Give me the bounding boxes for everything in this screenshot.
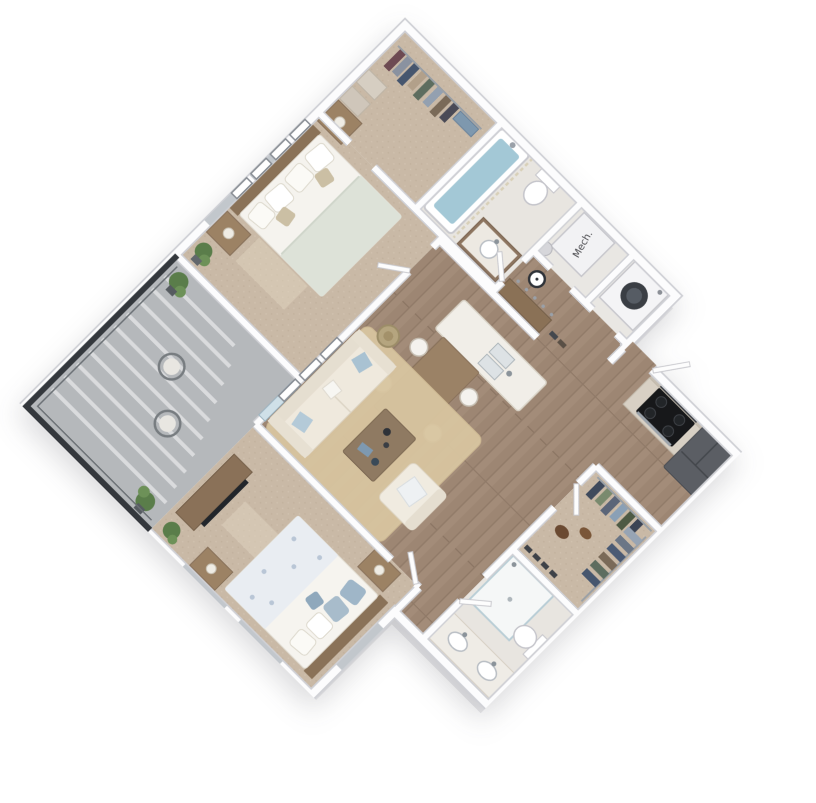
front-door-leaf [653, 362, 691, 373]
closet-2-door-leaf [574, 484, 579, 515]
floorplan-svg: Mech. [16, 11, 794, 789]
floorplan-canvas: Mech. [0, 0, 816, 803]
floorplan-rotated-wrap: Mech. [16, 11, 794, 789]
